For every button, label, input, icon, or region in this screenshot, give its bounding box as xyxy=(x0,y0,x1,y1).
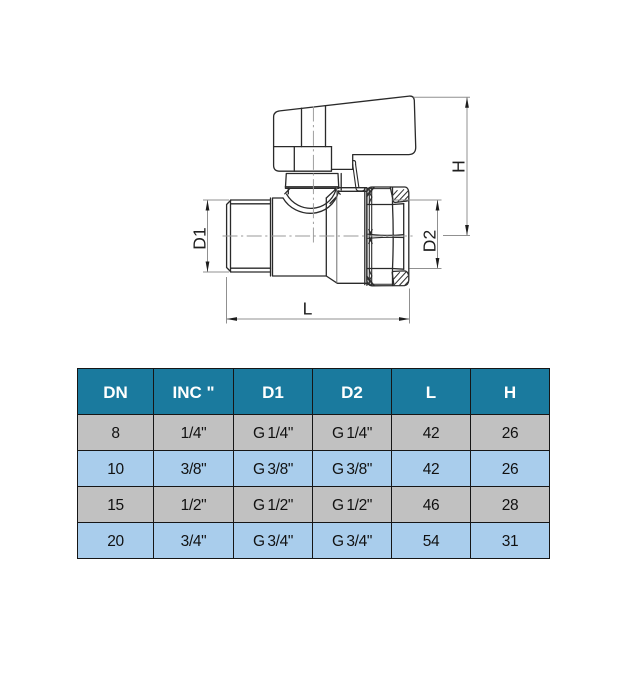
svg-text:D2: D2 xyxy=(420,230,440,252)
svg-text:D1: D1 xyxy=(190,227,210,249)
svg-text:H: H xyxy=(449,160,469,173)
svg-text:L: L xyxy=(303,299,313,319)
